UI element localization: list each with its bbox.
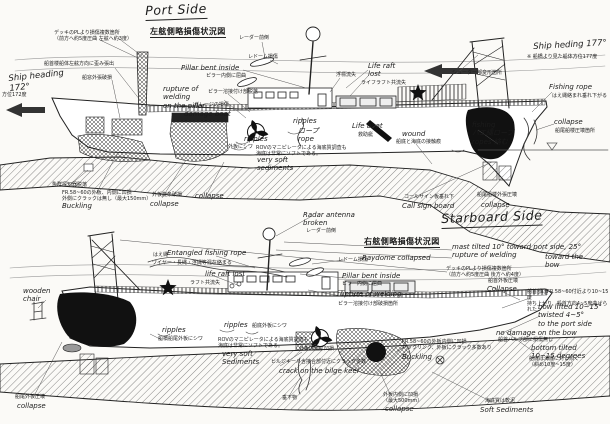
bridge-wrinkle-jp: 船橋船尾外板にシワ [158,337,203,343]
very-soft-1: very soft sediments [257,156,293,173]
raydome-2-en: Raydome collapsed [362,254,431,262]
collapse-3-en: collapse [385,405,414,413]
soft-sediments-jp: 海底質は軟泥 [485,399,515,405]
wound-en: wound [402,130,425,138]
ripples-3: ripples [162,326,186,334]
very-soft-2: very soft Sediments [222,350,259,367]
lifeboat-en: Life boat [352,122,383,130]
pillar-bent-en: Pillar bent inside [181,64,239,72]
garage-damage-jp: ガレージの損傷 [194,103,229,109]
fishfinder-note: 魚群探知器脱落 [52,183,87,189]
liferaft-lost-2-en: life raft lost [205,270,245,278]
fr58-note-2: FR.58~60の外板内側に凹損 バックリング、外板にクラック多数あり [402,340,492,352]
fishing-rope-en: Fishing rope [549,83,592,91]
callsign-jp: コールサイン板垂れ下 [404,195,454,201]
buckling-2: Buckling [402,353,432,361]
chute-note: シューター部変形箇所 [452,71,502,77]
shell-collapse-en: collapse [150,200,179,208]
rupture-welding-2-en: rupture of welding [337,290,402,298]
fishing-rope-jp: はえ縄絡まれ垂れ下がる [552,94,607,100]
bottom-tilted-jp: 船底は海底に対し傾く （斜め10度~15度） [529,357,579,369]
fr58-note: FR.58~60の外板、内側に凹損 外側にクラックは無し（最大150mm） [62,191,151,203]
wooden-chair: wooden chair [23,287,50,304]
stern-shell-jp: 船尾船楼外張圧壊 [477,193,517,199]
rupture-welding-jp: ピラー溶接付け部脱落 [208,90,258,96]
buckling-1: Buckling [62,202,92,210]
radar-broken-jp: レーダー前倒 [306,229,336,235]
bilge-keel-en: crack on the bilge keel [279,367,359,375]
heading-177: Ship heding 177° [533,38,607,52]
ripples-2: ripples [293,117,317,125]
heading-172-jp: 方位172度 [2,93,27,99]
bow-overhang-note: 船首楼船体左舷方向に歪み張出 [44,62,114,68]
hull-wrinkle-2: 船底外板にシワ [252,324,287,330]
heading-177-jp: ※ 船橋より見た船体方位177度 [527,55,597,61]
collapse-3-jp: 外板内側に凹損 （最大500mm） [383,393,422,405]
wound-jp: 船底と海底の接触痕 [396,140,441,146]
bilge-keel-jp: ビルジキール含接合部付近にクラック多数 [271,360,366,366]
ripples-1: ripples [244,135,268,143]
pillar-bent-jp: ピラー内側に屈曲 [206,74,246,80]
radome-damage-top: レドーム損傷 [248,55,278,61]
lifeboat-jp: 救助艇 [358,133,373,139]
window-plate-note: 船窓外張破損 [82,76,112,82]
dent-plate-jp: 外板内側に凹損 [299,347,334,353]
deck-pl-note-2: デッキのPLより損傷複数箇所 （前方へ約5度圧曲 後方へ約4度） [446,267,524,279]
starboard-title: Starboard Side [441,208,543,228]
liferaft-lost-2-jp: ラフト共流失 [190,281,220,287]
port-jp-title: 左舷側略損傷状況図 [150,27,226,38]
radar-broken-en: Radar antenna broken [303,211,355,228]
soft-sediments-en: Soft Sediments [480,406,533,414]
damage-diagram-page: Port Side左舷側略損傷状況図デッキのPLより損傷複数箇所 （前方へ約5度… [0,0,610,424]
annotations-layer: Port Side左舷側略損傷状況図デッキのPLより損傷複数箇所 （前方へ約5度… [0,0,610,424]
no-damage-bow-jp: 船首バルブ部に損傷無し [498,338,553,344]
no-damage-bow-en: no damage on the bow [496,329,577,337]
bow-lifted-en: bow lifted 10~15° twisted 4~5° to the po… [538,303,602,328]
heading-172: Ship heading 172° [8,68,65,94]
entangled-jp2: ワイヤー・長縄・浮縄等混在絡まる [152,261,232,267]
liferaft-lost-jp: ライフラフト共流失 [361,81,406,87]
starboard-jp-title: 右舷側略損傷状況図 [364,237,440,248]
garage-damage-en: damage boat [184,110,231,118]
callsign-en: Call sign board [402,202,454,210]
deck-pl-note: デッキのPLより損傷複数箇所 （前方へ約5度圧曲 左舷へ約3度） [54,31,132,43]
collapse-stern-en: collapse [554,118,583,126]
rupture-welding-2-jp: ピラー溶接付け部破損箇所 [338,302,398,308]
hull-wrinkle-1: 外板にシワ [228,145,253,151]
buoy-lost: 浮標流失 [336,73,356,79]
stern-collapse-2-en: collapse [17,402,46,410]
rov-note-2: ROVのマニピレータによる海底質調査も 海底は非常にソフトである。 [218,338,309,350]
pillar-bent-2-jp: ピラー内側に屈曲 [342,282,382,288]
port-title: Port Side [145,2,207,21]
liferaft-lost-en: Life raft lost [368,62,395,79]
pillar-bent-2-en: Pillar bent inside [342,272,400,280]
shell-collapse-jp: 外板旋条破損 [152,193,182,199]
rope-label: ロープ rope [298,127,319,144]
stern-collapse-2-jp: 船尾外板圧壊 [15,395,45,401]
bow-collapse-jp: 船首外板圧壊 [488,279,518,285]
bow-collapse-en: Collapse [487,285,517,293]
collapse-2: collapse [195,192,224,200]
ripples-4: ripples [224,321,248,329]
collapse-stern-jp: 船尾船楼圧壊箇所 [555,129,595,135]
fishing-ropes-mid: fishing ハエ縄ロープ ropes 絡む [472,121,514,146]
hanging-object-jp: 垂下物 [282,396,297,402]
toward-bow-note: toward the bow [545,253,583,270]
entangled-jp1: はえ縄 [153,253,168,259]
radar-forward-top: レーダー前倒 [239,36,269,42]
entangled-en: Entangled fishing rope [167,249,246,257]
